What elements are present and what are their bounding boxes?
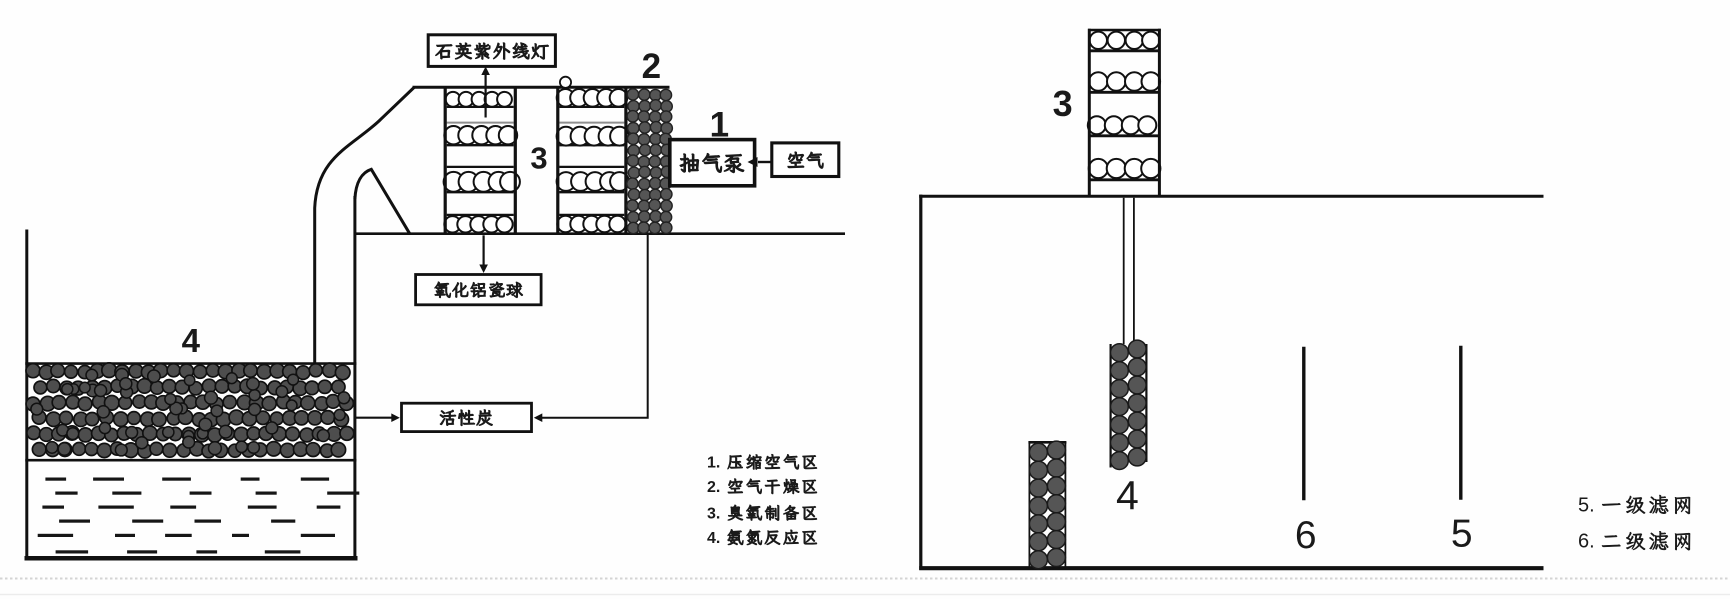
svg-text:5.: 5. [1578, 494, 1595, 516]
svg-text:3: 3 [1053, 83, 1073, 124]
svg-text:3.: 3. [707, 505, 720, 522]
svg-text:6.: 6. [1578, 531, 1595, 553]
svg-text:2.: 2. [707, 479, 720, 496]
svg-text:4: 4 [182, 322, 201, 359]
svg-text:3: 3 [530, 141, 547, 176]
svg-text:1.: 1. [707, 455, 720, 472]
svg-text:6: 6 [1295, 514, 1317, 557]
svg-text:5: 5 [1451, 512, 1473, 555]
svg-text:4: 4 [1116, 473, 1139, 519]
svg-text:2: 2 [642, 47, 661, 86]
svg-text:4.: 4. [707, 530, 720, 547]
